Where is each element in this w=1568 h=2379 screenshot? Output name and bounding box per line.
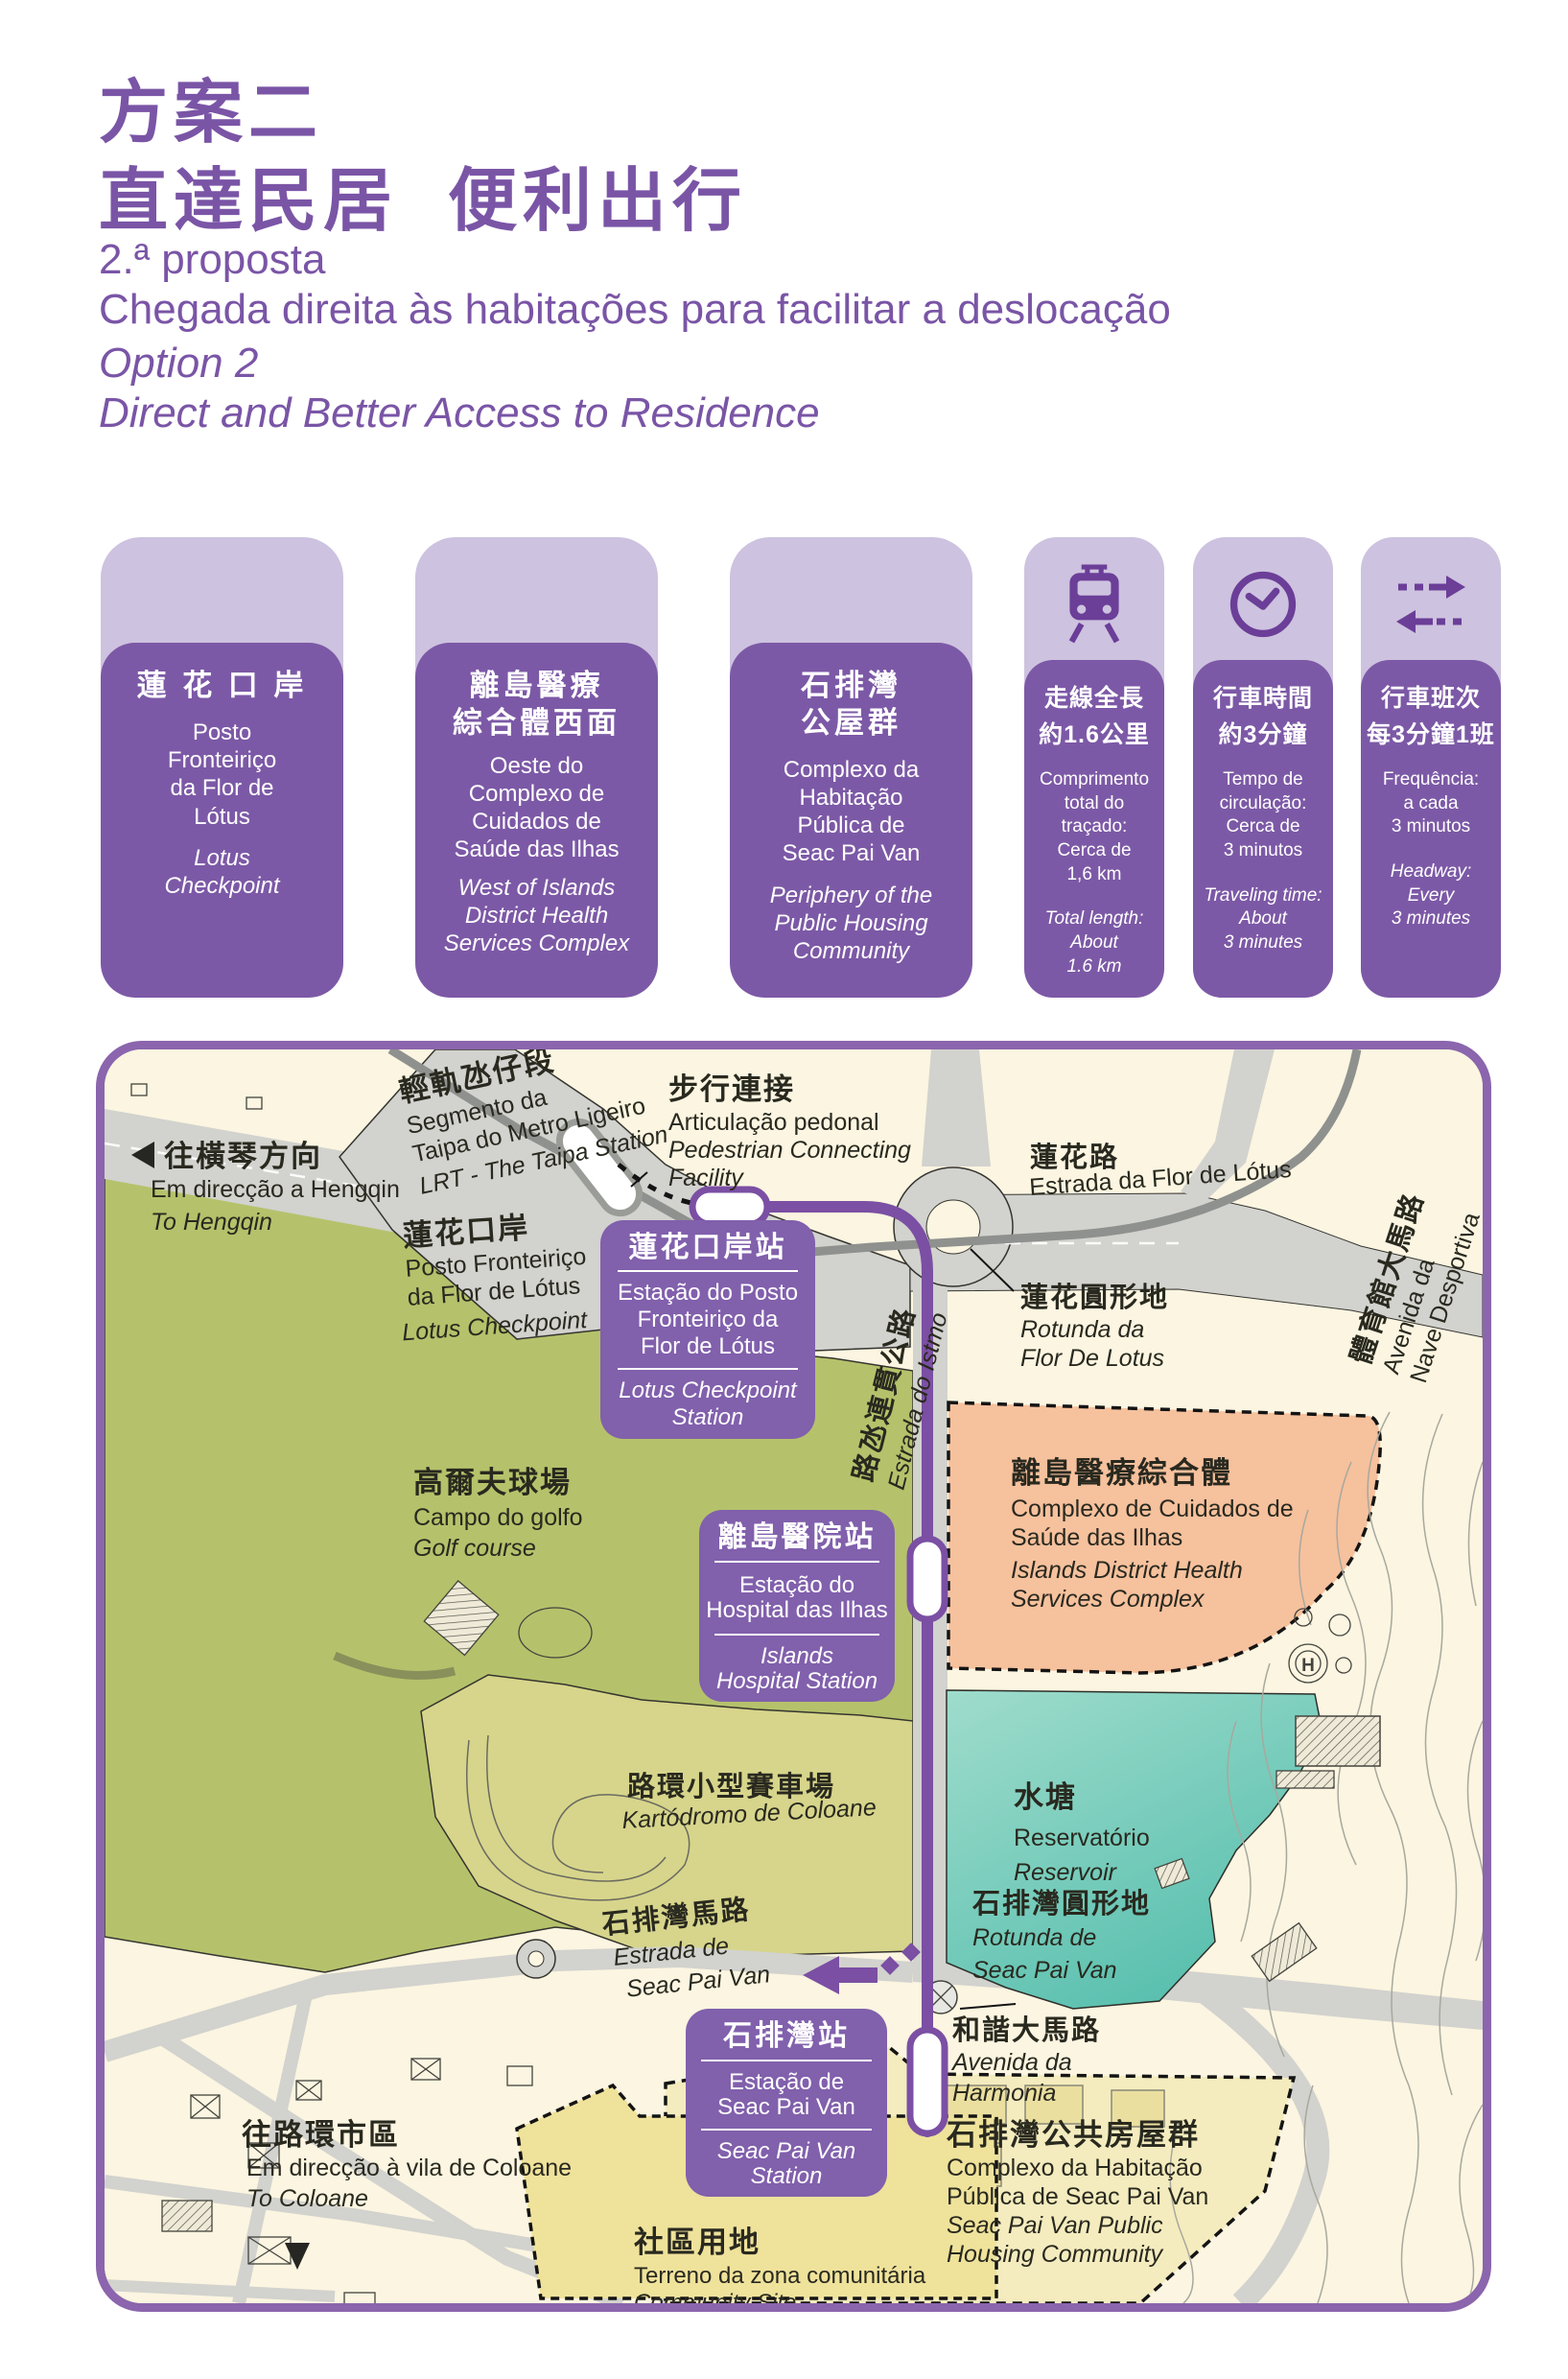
subtitle-en-line2: Direct and Better Access to Residence <box>99 389 820 437</box>
label-golf-pt: Campo do golfo <box>413 1504 583 1531</box>
label-coloane-pt: Em direcção à vila de Coloane <box>246 2155 572 2181</box>
label-hengqin-pt: Em direcção a Hengqin <box>151 1176 400 1203</box>
svg-text:石排灣站: 石排灣站 <box>722 2020 850 2052</box>
label-health-en1: Islands District Health <box>1011 1557 1243 1584</box>
clock-icon <box>1193 560 1333 648</box>
fact-pt: Comprimento total do traçado: Cerca de 1… <box>1030 768 1158 886</box>
svg-text:Station: Station <box>751 2163 823 2189</box>
label-pedestrian-en2: Facility <box>668 1165 744 1191</box>
fact-card-travel-time: 行車時間 約3分鐘 Tempo de circulação: Cerca de … <box>1193 537 1333 998</box>
svg-text:離島醫院站: 離島醫院站 <box>718 1520 877 1553</box>
station-card-body: 離島醫療 綜合體西面 Oeste do Complexo de Cuidados… <box>415 643 658 998</box>
fact-card-body: 行車時間 約3分鐘 Tempo de circulação: Cerca de … <box>1193 660 1333 998</box>
summary-section: 蓮 花 口 岸 Posto Fronteiriço da Flor de Lót… <box>101 537 1501 998</box>
title-zh-line1: 方案二 <box>99 56 323 156</box>
label-health-pt2: Saúde das Ilhas <box>1011 1524 1182 1551</box>
station-name-zh: 蓮 花 口 岸 <box>110 668 334 705</box>
station-name-zh: 離島醫療 綜合體西面 <box>425 668 648 742</box>
label-hengqin-zh: 往橫琴方向 <box>164 1140 322 1173</box>
label-health-en2: Services Complex <box>1011 1586 1205 1613</box>
svg-text:Seac Pai Van: Seac Pai Van <box>717 2138 856 2164</box>
label-health-zh: 離島醫療綜合體 <box>1011 1456 1232 1490</box>
label-community-en: Community Site <box>634 2290 796 2303</box>
svg-text:Seac Pai Van: Seac Pai Van <box>717 2094 855 2120</box>
fact-en: Total length: About 1.6 km <box>1030 907 1158 978</box>
seac-pai-van-station-pill <box>910 2030 945 2133</box>
label-golf-zh: 高爾夫球場 <box>413 1466 572 1499</box>
station-name-en: West of Islands District Health Services… <box>425 874 648 958</box>
fact-zh: 行車時間 約3分鐘 <box>1199 681 1327 753</box>
label-rotunda-flor-pt1: Rotunda da <box>1020 1316 1144 1343</box>
label-housing-en1: Seac Pai Van Public <box>947 2212 1163 2239</box>
station-box-islands-hospital: 離島醫院站 Estação do Hospital das Ilhas Isla… <box>699 1510 895 1702</box>
fact-pt: Tempo de circulação: Cerca de 3 minutos <box>1199 768 1327 863</box>
label-housing-pt2: Pública de Seac Pai Van <box>947 2183 1208 2210</box>
label-health-pt1: Complexo de Cuidados de <box>1011 1496 1294 1522</box>
label-reservoir-en: Reservoir <box>1014 1859 1118 1886</box>
label-hengqin-en: To Hengqin <box>151 1209 272 1236</box>
station-name-pt: Complexo da Habitação Pública de Seac Pa… <box>739 756 963 868</box>
fact-card-body: 走線全長 約1.6公里 Comprimento total do traçado… <box>1024 660 1164 998</box>
station-card-lotus-checkpoint: 蓮 花 口 岸 Posto Fronteiriço da Flor de Lót… <box>101 537 343 998</box>
label-community-pt: Terreno da zona comunitária <box>634 2263 926 2289</box>
label-pedestrian-en1: Pedestrian Connecting <box>668 1137 911 1164</box>
station-name-zh: 石排灣 公屋群 <box>739 668 963 742</box>
label-reservoir-zh: 水塘 <box>1014 1780 1077 1814</box>
label-pedestrian-zh: 步行連接 <box>668 1072 795 1106</box>
fact-pt: Frequência: a cada 3 minutos <box>1367 768 1495 839</box>
train-icon <box>1024 560 1164 648</box>
subtitle-pt-line1: 2.ª proposta <box>99 236 325 284</box>
label-housing-en2: Housing Community <box>947 2241 1164 2268</box>
svg-text:Station: Station <box>672 1404 744 1430</box>
route-map: H <box>96 1041 1491 2312</box>
label-harmonia-pt1: Avenida da <box>950 2049 1072 2076</box>
svg-text:Fronteiriço da: Fronteiriço da <box>638 1307 779 1332</box>
svg-text:Estação do: Estação do <box>739 1572 854 1598</box>
station-box-lotus-checkpoint: 蓮花口岸站 Estação do Posto Fronteiriço da Fl… <box>600 1220 815 1439</box>
label-rotunda-spv-pt2: Seac Pai Van <box>972 1957 1117 1984</box>
lotus-checkpoint-station-pill <box>692 1189 767 1224</box>
fact-card-headway: 行車班次 每3分鐘1班 Frequência: a cada 3 minutos… <box>1361 537 1501 998</box>
station-card-body: 蓮 花 口 岸 Posto Fronteiriço da Flor de Lót… <box>101 643 343 998</box>
svg-text:Estação do Posto: Estação do Posto <box>618 1280 798 1306</box>
fact-card-length: 走線全長 約1.6公里 Comprimento total do traçado… <box>1024 537 1164 998</box>
station-box-seac-pai-van: 石排灣站 Estação de Seac Pai Van Seac Pai Va… <box>686 2009 887 2197</box>
label-reservoir-pt: Reservatório <box>1014 1825 1150 1851</box>
label-golf-en: Golf course <box>413 1535 536 1562</box>
svg-text:蓮花口岸站: 蓮花口岸站 <box>629 1232 787 1263</box>
label-rotunda-spv-zh: 石排灣圓形地 <box>971 1888 1151 1920</box>
subtitle-pt-line2: Chegada direita às habitações para facil… <box>99 286 1171 334</box>
islands-hospital-station-pill <box>910 1539 945 1619</box>
fact-card-body: 行車班次 每3分鐘1班 Frequência: a cada 3 minutos… <box>1361 660 1501 998</box>
station-card-body: 石排灣 公屋群 Complexo da Habitação Pública de… <box>730 643 972 998</box>
svg-text:Islands: Islands <box>761 1643 833 1669</box>
label-coloane-en: To Coloane <box>246 2185 368 2212</box>
svg-text:Lotus Checkpoint: Lotus Checkpoint <box>619 1378 798 1403</box>
station-name-en: Lotus Checkpoint <box>110 844 334 901</box>
station-name-pt: Posto Fronteiriço da Flor de Lótus <box>110 718 334 831</box>
label-housing-zh: 石排灣公共房屋群 <box>946 2118 1200 2152</box>
route-map-svg: H <box>105 1049 1483 2303</box>
frequency-arrows-icon <box>1361 560 1501 648</box>
svg-text:H: H <box>1301 1656 1315 1676</box>
station-card-health-complex-west: 離島醫療 綜合體西面 Oeste do Complexo de Cuidados… <box>415 537 658 998</box>
station-name-en: Periphery of the Public Housing Communit… <box>739 882 963 966</box>
fact-zh: 走線全長 約1.6公里 <box>1030 681 1158 753</box>
label-rotunda-flor-zh: 蓮花圓形地 <box>1020 1282 1169 1313</box>
station-card-seac-pai-van: 石排灣 公屋群 Complexo da Habitação Pública de… <box>730 537 972 998</box>
title-zh-line2: 直達民居 便利出行 <box>99 144 747 245</box>
svg-text:Hospital Station: Hospital Station <box>716 1668 878 1694</box>
label-coloane-zh: 往路環市區 <box>242 2118 400 2152</box>
svg-text:Estação de: Estação de <box>729 2069 844 2095</box>
svg-text:Hospital das Ilhas: Hospital das Ilhas <box>706 1597 887 1623</box>
label-housing-pt1: Complexo da Habitação <box>947 2155 1203 2181</box>
station-name-pt: Oeste do Complexo de Cuidados de Saúde d… <box>425 752 648 864</box>
label-rotunda-flor-pt2: Flor De Lotus <box>1020 1345 1164 1372</box>
fact-zh: 行車班次 每3分鐘1班 <box>1367 681 1495 753</box>
label-pedestrian-pt: Articulação pedonal <box>668 1109 879 1136</box>
page: { "colors": { "accent": "#7A55A6", "card… <box>0 0 1568 2379</box>
label-harmonia-pt2: Harmonia <box>952 2080 1056 2107</box>
subtitle-en-line1: Option 2 <box>99 340 258 388</box>
svg-text:Flor de Lótus: Flor de Lótus <box>641 1333 775 1359</box>
fact-en: Headway: Every 3 minutes <box>1367 860 1495 931</box>
label-community-zh: 社區用地 <box>634 2226 761 2259</box>
label-rotunda-spv-pt1: Rotunda de <box>972 1924 1096 1951</box>
label-harmonia-zh: 和諧大馬路 <box>952 2014 1101 2046</box>
fact-en: Traveling time: About 3 minutes <box>1199 884 1327 955</box>
